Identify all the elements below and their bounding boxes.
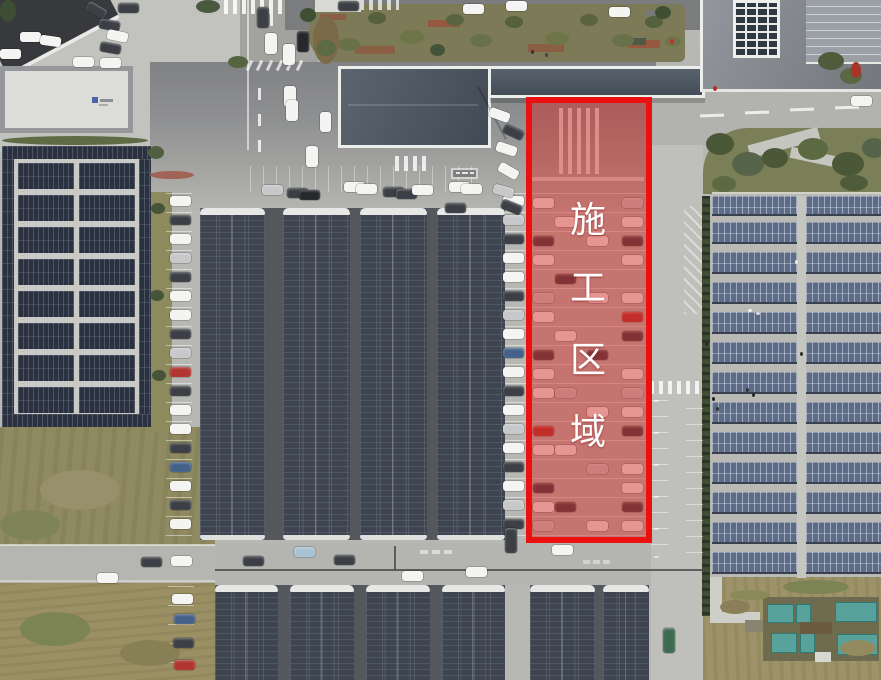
vegetation [0,0,16,22]
solar-carport-row [806,462,881,484]
vegetation [580,14,598,26]
car [118,3,139,13]
vegetation [505,16,523,28]
solar-carport-row [806,552,881,574]
solar-carport-row [712,342,797,364]
vegetation [150,290,164,301]
car [503,424,524,434]
vegetation [612,34,634,47]
car [338,1,359,11]
car [100,58,121,68]
car [170,443,191,453]
vegetation [545,32,569,45]
car [170,367,191,377]
car [609,7,630,17]
construction-zone-overlay [526,97,652,543]
car [170,424,191,434]
car [174,660,195,670]
solar-carport-row [712,522,797,544]
pavement-mark [247,0,249,150]
car [170,462,191,472]
vegetation [783,580,849,594]
car [503,405,524,415]
pedestrian-dot [752,393,755,397]
crosswalk [224,0,286,14]
car [170,234,191,244]
solar-canopy [530,585,595,680]
solar-canopy [442,585,505,680]
car [503,443,524,453]
solar-carport-row [712,552,797,574]
solar-panel-block [18,259,74,285]
vegetation [151,203,165,214]
construction-zone-label-char: 区 [568,341,608,379]
parking-aisle [354,585,366,680]
solar-canopy [215,585,278,680]
car [174,614,195,624]
solar-canopy [437,208,505,540]
pavement-mark [456,172,460,174]
car [173,638,194,648]
pavement-mark [420,550,428,554]
pavement-mark [745,620,763,632]
car [463,4,484,14]
solar-carport-row [806,282,881,304]
pavement-mark [654,400,659,402]
vegetation [2,136,148,145]
pavement-mark [593,560,600,564]
car [170,253,191,263]
pavement-mark [215,569,703,571]
solar-carport-row [712,252,797,274]
pavement-mark [710,577,722,617]
solar-canopy [283,208,350,540]
solar-panel-block [79,355,135,381]
car [262,185,283,195]
car [306,146,318,167]
car [851,96,872,106]
solar-carport-row [806,432,881,454]
pedestrian-dot [531,50,534,54]
parking-aisle [350,208,360,540]
car [503,215,524,225]
storage-shed [800,633,815,653]
vegetation [228,56,248,68]
pedestrian-dot [746,388,749,392]
solar-panel-block [79,259,135,285]
car [257,7,269,28]
solar-carport-row [806,196,881,216]
vegetation [712,176,736,192]
car [503,272,524,282]
car [265,33,277,54]
crosswalk [650,381,700,394]
pavement-mark [800,622,832,634]
pavement-mark [258,88,261,100]
pavement-mark [462,172,468,174]
vegetation [300,8,316,22]
solar-carport-row [712,432,797,454]
car [170,481,191,491]
solar-panel-block [139,159,151,414]
car [663,628,675,653]
solar-carport-row [806,222,881,244]
vegetation [0,510,60,540]
car [294,547,315,557]
solar-canopy [200,208,265,540]
vegetation [851,62,861,78]
vegetation [196,0,220,13]
car [505,528,517,553]
pavement-mark [394,546,396,570]
car [170,405,191,415]
car [503,462,524,472]
car [552,545,573,555]
solar-carport-row [806,372,881,394]
pavement-mark [270,14,273,26]
car [503,500,524,510]
car [172,594,193,604]
vegetation [150,171,194,179]
car [286,100,298,121]
car [503,291,524,301]
vegetation [832,152,864,176]
solar-carport-row [712,462,797,484]
solar-canopy [603,585,649,680]
solar-carport-row [712,402,797,424]
car [0,49,21,59]
storage-shed [771,633,797,653]
car [466,567,487,577]
vegetation [732,152,764,176]
solar-carport-row [712,492,797,514]
pavement-mark [603,560,610,564]
car [503,481,524,491]
pavement-mark [470,172,474,174]
building-long-roof [488,66,705,98]
car [412,185,433,195]
vegetation [40,470,120,510]
solar-panel-block [79,387,135,413]
road-middle [215,543,703,585]
vegetation [862,138,881,158]
car [356,184,377,194]
pavement-mark [258,140,261,152]
storage-shed [835,602,877,622]
building-top-right-annex [806,0,881,64]
vegetation [720,600,750,614]
vegetation [148,146,164,159]
solar-carport-row [806,402,881,424]
skylight-atrium [733,0,780,58]
parking-bay-lines [686,408,703,560]
pedestrian-dot [716,407,719,411]
car [445,203,466,213]
solar-panel-block [2,159,14,414]
solar-panel-block [18,355,74,381]
pedestrian-dot [748,309,752,312]
vegetation [400,30,424,44]
car [170,348,191,358]
pedestrian-dot [713,86,717,91]
car [283,44,295,65]
pedestrian-dot [705,342,708,346]
car [503,329,524,339]
car [320,112,331,132]
vegetation [655,6,671,19]
car [97,573,118,583]
solar-carport-row [806,342,881,364]
solar-panel-block [2,146,151,159]
car [170,386,191,396]
vegetation [446,14,464,26]
car [334,555,355,565]
parking-aisle [427,208,437,540]
solar-panel-block [18,163,74,189]
pavement-mark [0,544,215,546]
car [503,310,524,320]
pedestrian-dot [800,352,803,356]
pavement-mark [654,556,659,558]
solar-panel-block [79,323,135,349]
vegetation [152,370,166,381]
solar-carport-row [712,312,797,334]
vegetation [368,12,386,24]
pavement-mark [654,464,659,466]
solar-panel-block [18,195,74,221]
car [503,234,524,244]
construction-zone-label-char: 域 [568,413,608,451]
parking-aisle [430,585,442,680]
storage-shed [767,604,794,623]
car [170,215,191,225]
solar-carport-row [712,222,797,244]
solar-panel-block [18,227,74,253]
pavement-mark [258,114,261,126]
car [170,329,191,339]
pedestrian-dot [545,53,548,57]
pavement-mark [444,550,452,554]
building-white-roof [0,66,133,133]
pavement-mark [583,560,590,564]
storage-shed [796,604,811,623]
vegetation [730,590,770,600]
car [20,32,41,42]
solar-canopy [360,208,427,540]
car [402,571,423,581]
solar-carport-row [712,196,797,216]
car [503,386,524,396]
solar-carport-row [806,252,881,274]
pavement-mark [348,104,478,106]
shed-walkway [797,196,806,578]
car [506,1,527,11]
car [170,196,191,206]
solar-panel-block [79,195,135,221]
car [297,31,309,52]
vegetation [470,34,492,47]
vegetation [338,38,360,51]
pedestrian-dot [756,312,760,315]
pavement-mark [100,99,113,102]
solar-panel-block [2,414,151,427]
pavement-mark [654,432,659,434]
solar-panel-block [18,387,74,413]
solar-panel-block [79,291,135,317]
crosswalk [395,156,428,171]
car [171,556,192,566]
parking-aisle [278,585,290,680]
parking-bay-lines [651,400,668,560]
car [170,291,191,301]
solar-panel-block [18,291,74,317]
solar-panel-block [79,227,135,253]
pedestrian-dot [795,260,798,264]
car [243,556,264,566]
vegetation [430,44,445,56]
pavement-mark [654,496,659,498]
car [503,348,524,358]
pavement-mark [815,652,831,662]
car [503,367,524,377]
vegetation [20,612,90,646]
solar-panel-block [79,163,135,189]
parking-aisle [265,208,283,540]
pavement-mark [654,528,659,530]
vegetation [840,175,868,191]
solar-panel-block [18,323,74,349]
pavement-mark [432,550,440,554]
pavement-mark [355,46,395,54]
car [170,519,191,529]
vegetation [120,640,180,666]
pavement-mark [99,104,108,106]
vegetation [762,148,788,168]
no-parking-hatch [684,206,702,314]
vegetation [798,138,828,160]
car [299,190,320,200]
solar-canopy [366,585,430,680]
solar-canopy [290,585,354,680]
car [461,184,482,194]
aerial-photo: 施 工 区 域 [0,0,881,680]
vegetation [706,133,734,155]
car [170,500,191,510]
vegetation [316,40,336,56]
solar-carport-row [806,492,881,514]
pedestrian-dot [670,39,674,44]
construction-zone-label-char: 工 [568,269,608,307]
building-long-wing [338,66,491,148]
solar-carport-row [712,282,797,304]
construction-zone-label-char: 施 [568,201,608,239]
car [170,310,191,320]
car [141,557,162,567]
solar-carport-row [806,522,881,544]
solar-carport-row [806,312,881,334]
car [170,272,191,282]
car [73,57,94,67]
pavement-mark [92,97,98,103]
hedge-strip-right [702,196,710,616]
pedestrian-dot [712,397,715,401]
solar-carport-row [712,372,797,394]
car [503,253,524,263]
vegetation [840,640,876,656]
pavement-mark [712,192,881,194]
vegetation [818,52,844,70]
